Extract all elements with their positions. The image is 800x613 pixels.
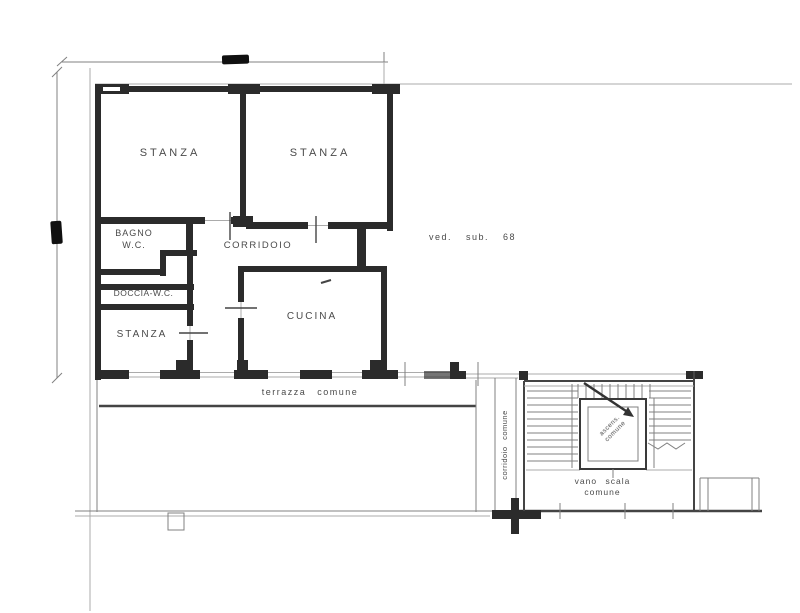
room-label-stanza-top-left: STANZA [105, 147, 235, 159]
dimension-value-blob-top [222, 55, 249, 65]
top-dimension-line [57, 52, 388, 84]
room-label-stanza-bottom: STANZA [94, 329, 190, 340]
room-label-stanza-top-right: STANZA [255, 147, 385, 159]
room-label-corridoio: CORRIDOIO [203, 240, 313, 251]
annotation-terrazza-comune: terrazza comune [225, 387, 395, 397]
floor-plan-page: STANZA STANZA BAGNO W.C. CORRIDOIO DOCCI… [0, 0, 800, 613]
annotation-corridoio-comune: corridoio comune [500, 385, 512, 505]
annotation-vano-scala: vano scala comune [550, 476, 655, 498]
room-label-bagno-line1: BAGNO [98, 227, 170, 239]
room-label-doccia: DOCCIA-W.C. [96, 288, 191, 298]
terrace-outline [97, 380, 476, 512]
room-label-cucina: CUCINA [258, 311, 366, 322]
annotation-vano-scala-line2: comune [550, 487, 655, 498]
parapet [75, 503, 762, 530]
room-label-bagno: BAGNO W.C. [98, 227, 170, 251]
annotation-ved-sub: ved. sub. 68 [410, 232, 535, 242]
annotation-vano-scala-line1: vano scala [550, 476, 655, 487]
dimension-value-blob-left [50, 221, 63, 245]
room-label-bagno-line2: W.C. [98, 239, 170, 251]
floor-plan-drawing [0, 0, 800, 613]
left-dimension-line [50, 67, 63, 383]
